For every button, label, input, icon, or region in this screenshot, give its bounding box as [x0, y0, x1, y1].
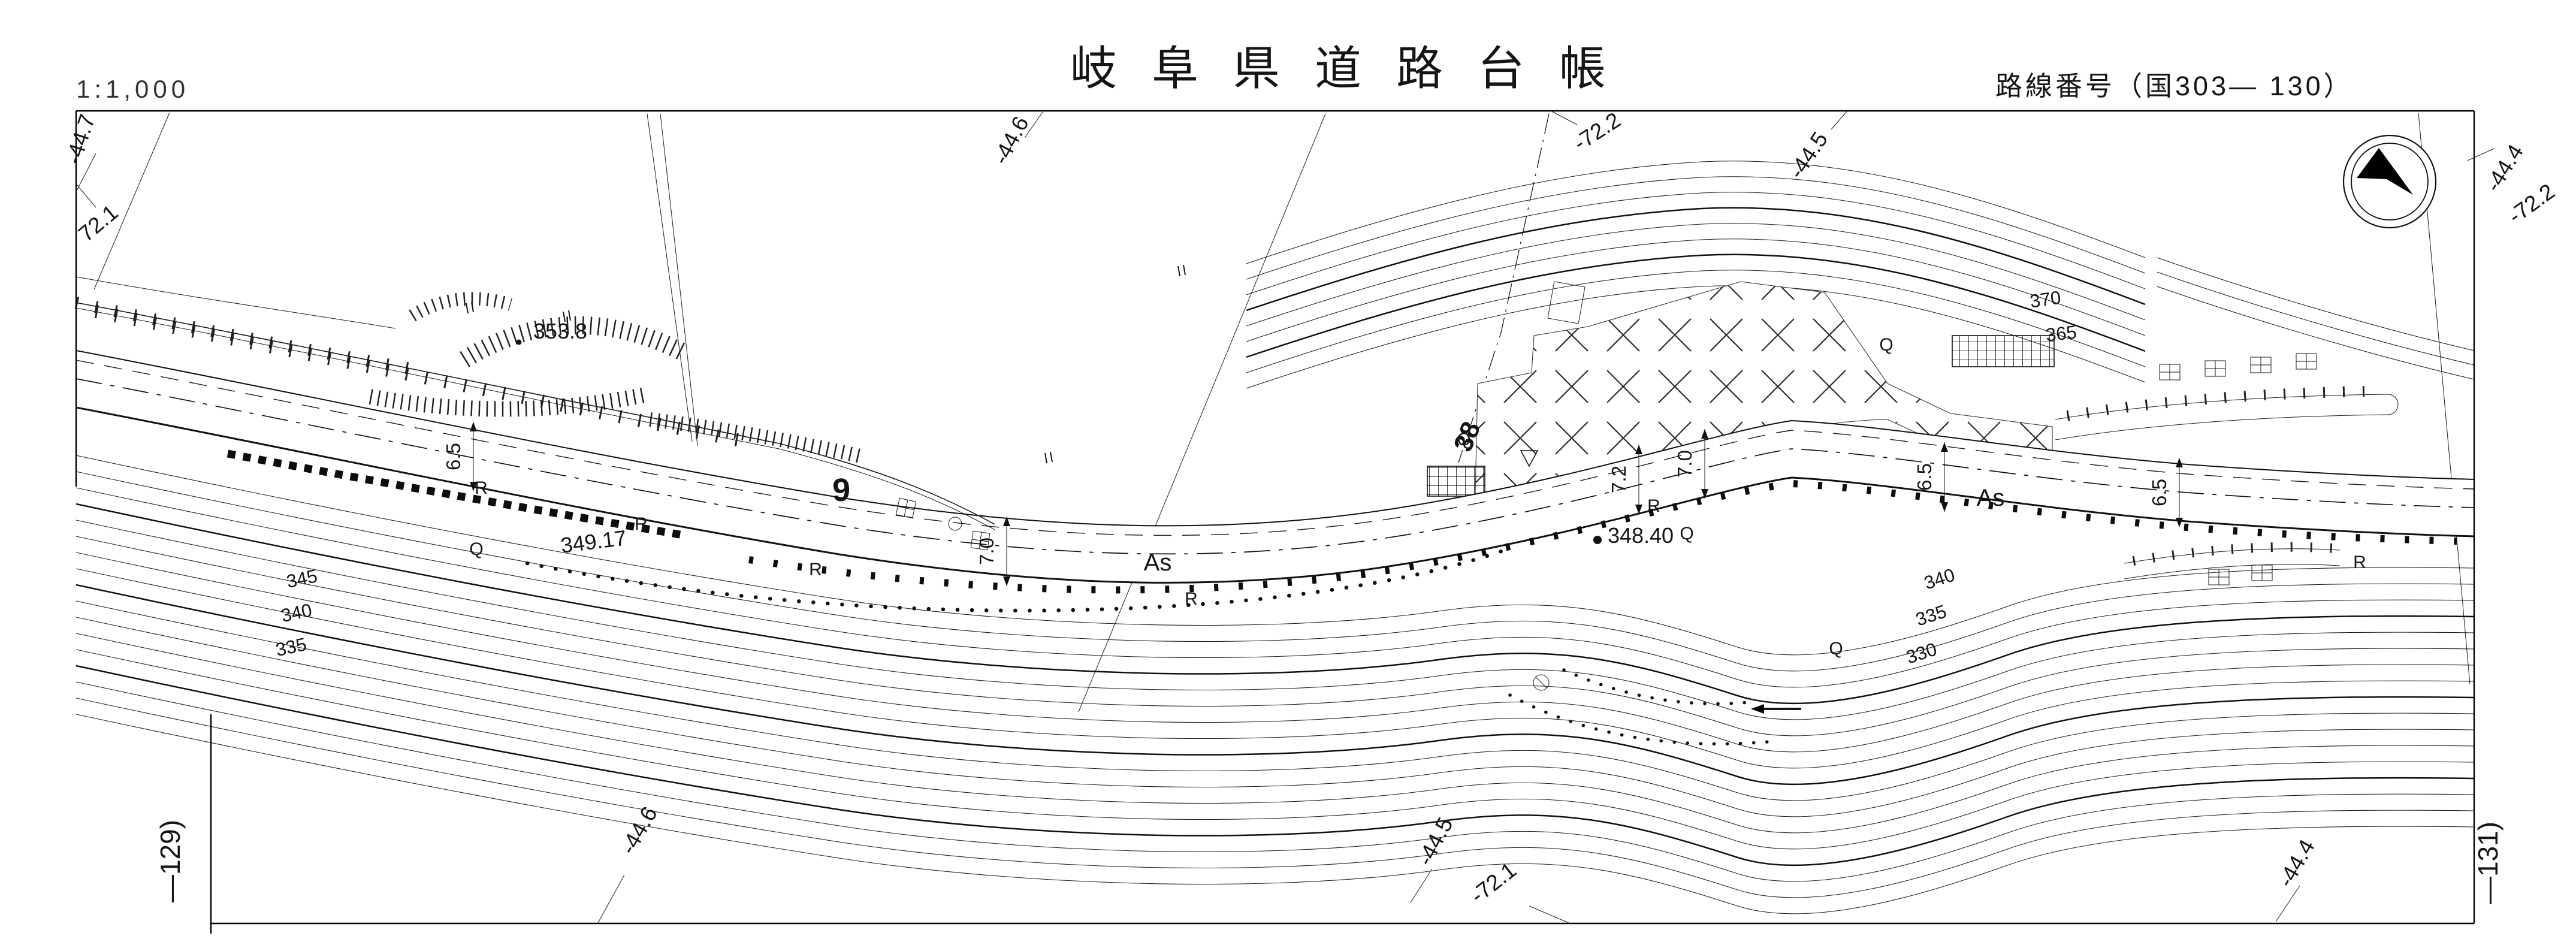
width-label: 7.0 — [976, 538, 998, 565]
width-label: 6.5 — [442, 443, 464, 470]
wall-marker: R — [1647, 496, 1660, 516]
pavement-label: As — [1144, 549, 1172, 576]
grid-coordinate-label: -44.5 — [1412, 813, 1458, 869]
sheet-title: 岐阜県道路台帳 — [1070, 42, 1641, 95]
dotted-area-boundary — [1564, 670, 1748, 704]
terrace-wall-line — [76, 277, 395, 328]
grid-coordinate-label: -44.4 — [2273, 835, 2320, 892]
spot-elevation-dot — [517, 340, 522, 345]
symbol-marker: Q — [469, 539, 483, 559]
contour-label: 335 — [274, 633, 309, 660]
contour-label: 370 — [2028, 287, 2062, 312]
symbol-marker: Q — [1879, 335, 1893, 355]
station-number: 9 — [832, 472, 850, 508]
north-arrow-icon — [2344, 135, 2436, 228]
manhole-cross-icon — [1533, 675, 1549, 690]
survey-line — [1079, 114, 1325, 712]
road — [76, 303, 2474, 590]
paddy-field-icon — [2251, 357, 2271, 373]
paddy-field-icon — [2160, 364, 2180, 380]
contour-label: 335 — [1913, 600, 1949, 630]
contour-line — [1246, 177, 2145, 279]
flow-arrow-icon — [1751, 704, 1801, 714]
contour-line — [2157, 258, 2474, 351]
paddy-field-icon — [2205, 361, 2225, 376]
grid-ticks — [77, 111, 2494, 923]
contour-label: 365 — [2045, 321, 2077, 345]
retaining-wall-grid — [1427, 466, 1485, 496]
road-surface — [76, 351, 2474, 582]
symbol-marker: Q — [1457, 430, 1470, 449]
grid-coordinate-label: -44.7 — [61, 111, 100, 167]
wall-marker: R — [475, 478, 488, 498]
grid-coordinate-label: -44.6 — [988, 112, 1034, 168]
pavement-label: As — [1977, 485, 2005, 511]
contour-label: 340 — [279, 599, 314, 626]
width-label: 6.5 — [2148, 479, 2170, 506]
grid-coordinate-label: -72.2 — [2503, 179, 2559, 229]
width-label: 7.0 — [1674, 450, 1696, 478]
paddy-field-icon — [2252, 565, 2272, 581]
route-number-label: 路線番号（国303— 130） — [1995, 71, 2354, 101]
grid-coordinate-label: -44.4 — [2481, 140, 2528, 196]
section-line — [660, 114, 697, 446]
paddy-field-icon — [2296, 354, 2317, 369]
spot-elevation-label: 353.8 — [533, 319, 587, 343]
wall-marker: R — [1185, 589, 1198, 609]
grid-coordinate-label: -72.1 — [1466, 858, 1521, 908]
field-road-end — [2388, 394, 2398, 415]
contour-line — [1246, 161, 2145, 264]
grid-coordinate-label: -44.6 — [615, 802, 662, 859]
grid-coordinate-label: -72.2 — [1569, 107, 1625, 155]
wall-marker: R — [2353, 552, 2366, 572]
contour-label: 345 — [285, 565, 319, 592]
symbol-marker: Q — [1680, 524, 1693, 544]
double-tick-icon — [1045, 452, 1052, 463]
road-elevation-label: 349.17 — [559, 526, 627, 558]
contour-line — [2157, 286, 2474, 379]
retaining-wall-grid — [1952, 336, 2054, 367]
fence-post-row — [2067, 391, 2373, 416]
width-label: 6.5 — [1913, 463, 1935, 491]
wall-marker: R — [635, 514, 648, 534]
map-scale-label: 1:1,000 — [76, 75, 189, 103]
grid-coordinate-label: -44.5 — [1784, 128, 1832, 183]
symbol-marker: Q — [1829, 639, 1843, 659]
double-tick-icon — [1178, 265, 1185, 276]
road-elevation-label: 348.40 — [1608, 523, 1674, 548]
right-sheet-reference: —131) — [2472, 822, 2503, 904]
double-tick-icon — [466, 302, 473, 313]
structure-outline — [1548, 282, 1585, 324]
left-sheet-reference: —129) — [155, 820, 186, 902]
section-line — [647, 114, 692, 442]
contour-line — [2157, 272, 2474, 365]
hachure-slope-icon — [412, 298, 511, 316]
hachure-slope-icon — [650, 419, 863, 457]
width-label: 7.2 — [1608, 466, 1630, 493]
contour-label: 340 — [1922, 564, 1958, 593]
contour-label: 330 — [1904, 638, 1940, 668]
wall-marker: R — [809, 560, 822, 579]
spot-elevation-dot — [1593, 536, 1602, 544]
field-road-edge — [2055, 415, 2388, 440]
road-register-map-sheet: 6.5 7.0 7.2 7.0 6.5 6.5 353.8 349.17 348… — [0, 0, 2576, 942]
hachure-slope-icon — [370, 394, 648, 409]
contour-line — [1246, 192, 2145, 295]
